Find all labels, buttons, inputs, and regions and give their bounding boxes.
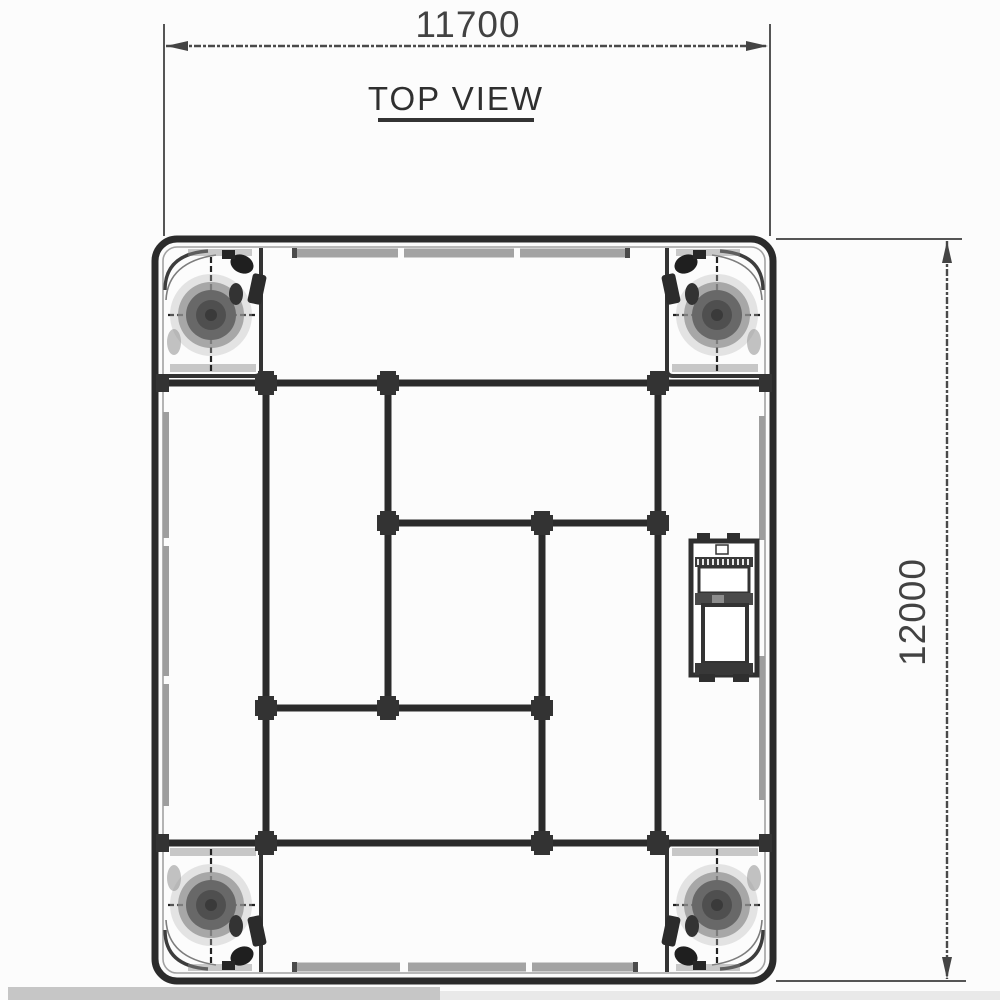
wheel-assembly-bottom-left xyxy=(164,844,267,972)
wheel-assembly-top-right xyxy=(661,248,764,376)
wheel-assembly-bottom-right xyxy=(661,844,764,972)
bottom-edge-strip xyxy=(292,962,638,972)
equipment-box-lower-window xyxy=(703,605,747,663)
chassis-inner-outline xyxy=(163,247,765,973)
arrowhead-right-icon xyxy=(746,41,768,51)
top-edge-strip xyxy=(292,248,630,258)
arrowhead-left-icon xyxy=(166,41,188,51)
scan-artifact-band xyxy=(8,987,1000,1000)
wheel-assembly-top-left xyxy=(164,248,267,376)
drawing-title: TOP VIEW xyxy=(368,80,544,120)
technical-drawing-canvas: 11700 12000 TOP VIEW xyxy=(0,0,1000,1000)
height-dimension: 12000 xyxy=(776,239,966,981)
width-dimension-label: 11700 xyxy=(415,4,520,45)
arrowhead-down-icon xyxy=(942,957,952,979)
arrowhead-up-icon xyxy=(942,241,952,263)
height-dimension-label: 12000 xyxy=(892,558,933,666)
chassis-outline xyxy=(155,239,773,981)
truss-connector-nodes xyxy=(156,371,772,855)
inner-frame-truss xyxy=(156,371,772,855)
technical-drawing-page: 11700 12000 TOP VIEW xyxy=(0,0,1000,1000)
chassis-body xyxy=(155,239,773,981)
page-title: TOP VIEW xyxy=(368,80,544,117)
equipment-box xyxy=(691,533,757,682)
equipment-box-upper-window xyxy=(699,567,749,593)
